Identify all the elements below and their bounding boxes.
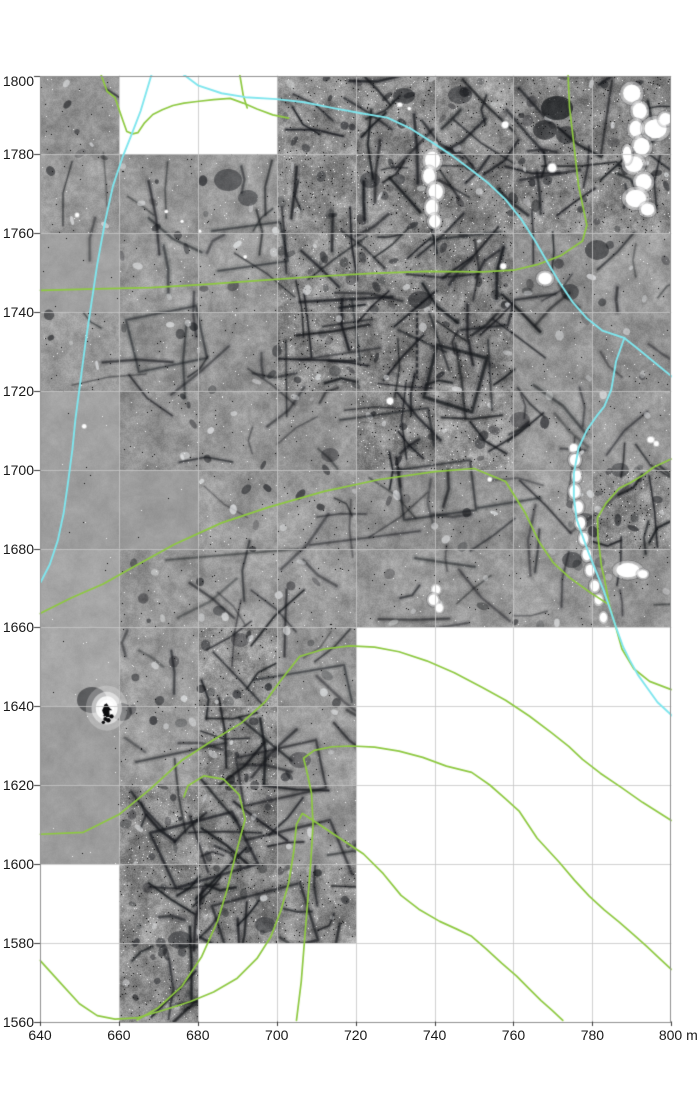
survey-map-canvas bbox=[0, 0, 700, 1094]
geophysical-survey-figure: 1800178017601740172017001680166016401620… bbox=[0, 0, 700, 1094]
